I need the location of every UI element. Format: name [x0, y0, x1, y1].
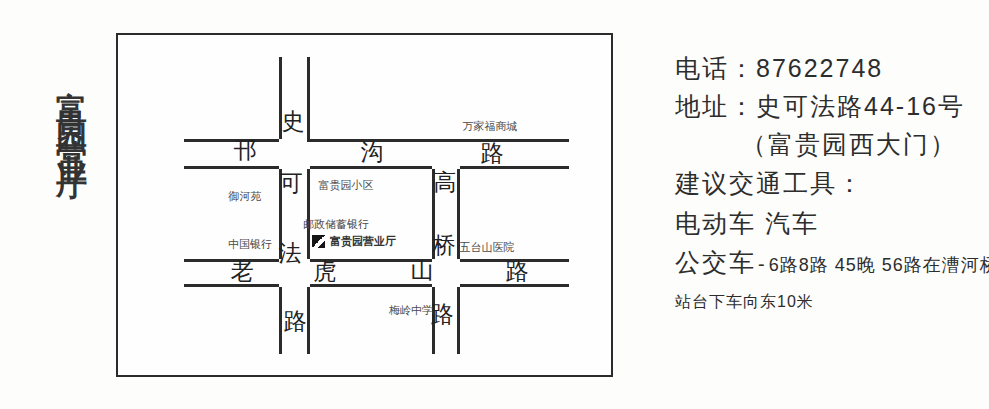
bus-line: 公交车-6路8路 45晚 56路在漕河桥 [675, 246, 989, 279]
road-line [307, 57, 310, 139]
road-line [279, 287, 282, 354]
road-line [307, 169, 310, 259]
road-line [307, 287, 310, 354]
bus-dash: - [758, 253, 767, 275]
road-line [310, 166, 432, 169]
road-line [307, 139, 569, 142]
landmark-postal-savings-bank: 邮政储蓄银行 [303, 219, 369, 230]
street-name-shikefa-char: 史 [282, 110, 305, 133]
landmark-wutaishan-hospital: 五台山医院 [460, 242, 515, 253]
location-map: 史 可 法 路 邗 沟 路 高 桥 路 老 虎 山 路 万家福商城 御河苑 中国… [116, 33, 613, 377]
bus-label: 公交车 [675, 248, 756, 276]
road-line [310, 284, 432, 287]
business-hall-marker: 富贵园营业厅 [312, 235, 396, 248]
street-name-hangou-char: 沟 [361, 141, 384, 164]
street-name-hangou-char: 路 [481, 142, 504, 165]
business-hall-marker-icon [312, 235, 325, 248]
street-name-laohushan-char: 虎 [314, 260, 337, 283]
street-name-hangou-char: 邗 [234, 139, 257, 162]
landmark-wanjiafu-mall: 万家福商城 [463, 121, 518, 132]
address-note-line: （富贵园西大门） [741, 128, 957, 161]
page-title: 富贵园营业厅 [50, 66, 92, 162]
landmark-bank-of-china: 中国银行 [228, 239, 272, 250]
street-name-gaoqiao-char: 高 [434, 171, 457, 194]
road-line [457, 287, 460, 354]
street-name-laohushan-char: 路 [506, 260, 529, 283]
bus-routes: 6路8路 45晚 56路在漕河桥 [769, 255, 989, 275]
street-name-shikefa-char: 法 [279, 242, 302, 265]
bus-note-line: 站台下车向东10米 [675, 292, 814, 313]
address-line: 地址：史可法路44-16号 [675, 90, 965, 123]
road-line [460, 284, 569, 287]
landmark-meiling-school: 梅岭中学 [389, 305, 433, 316]
landmark-fuguiyuan-community: 富贵园小区 [319, 180, 374, 191]
landmark-yuheyuan: 御河苑 [229, 191, 262, 202]
road-line [460, 166, 569, 169]
street-name-gaoqiao-char: 桥 [433, 234, 456, 257]
street-name-shikefa-char: 可 [280, 172, 303, 195]
street-name-shikefa-char: 路 [284, 310, 307, 333]
transport-title-line: 建议交通工具： [675, 167, 864, 200]
phone-line: 电话：87622748 [675, 52, 883, 85]
street-name-laohushan-char: 老 [231, 260, 254, 283]
road-line [184, 166, 279, 169]
vehicles-line: 电动车 汽车 [675, 207, 819, 240]
landmark-fuguiyuan-hall: 富贵园营业厅 [330, 236, 396, 247]
flyer-root: { "sidebar": { "title": "富贵园营业厅" }, "map… [0, 0, 989, 409]
street-name-gaoqiao-char: 路 [431, 303, 454, 326]
street-name-laohushan-char: 山 [411, 259, 434, 282]
road-line [184, 284, 279, 287]
road-line [184, 139, 279, 142]
